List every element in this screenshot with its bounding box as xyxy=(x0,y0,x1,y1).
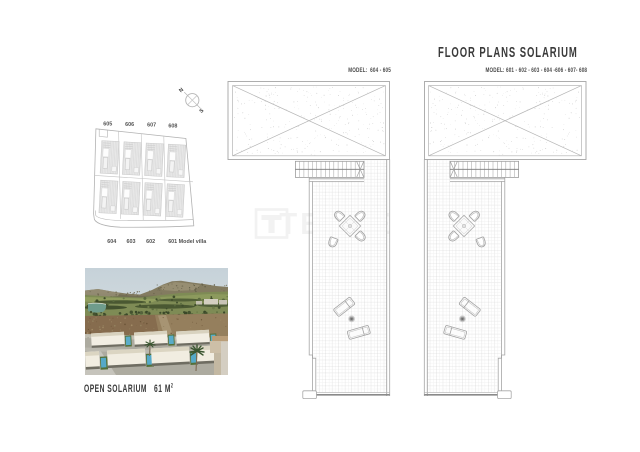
svg-text:603: 603 xyxy=(127,239,136,245)
svg-text:608: 608 xyxy=(168,124,177,130)
svg-text:N: N xyxy=(178,87,185,94)
svg-text:606: 606 xyxy=(125,122,134,128)
svg-text:601 Model villa: 601 Model villa xyxy=(168,239,207,245)
svg-text:602: 602 xyxy=(146,239,155,245)
svg-text:S: S xyxy=(199,108,206,115)
svg-text:604: 604 xyxy=(107,239,116,245)
svg-text:605: 605 xyxy=(103,121,112,127)
svg-text:607: 607 xyxy=(147,123,156,129)
